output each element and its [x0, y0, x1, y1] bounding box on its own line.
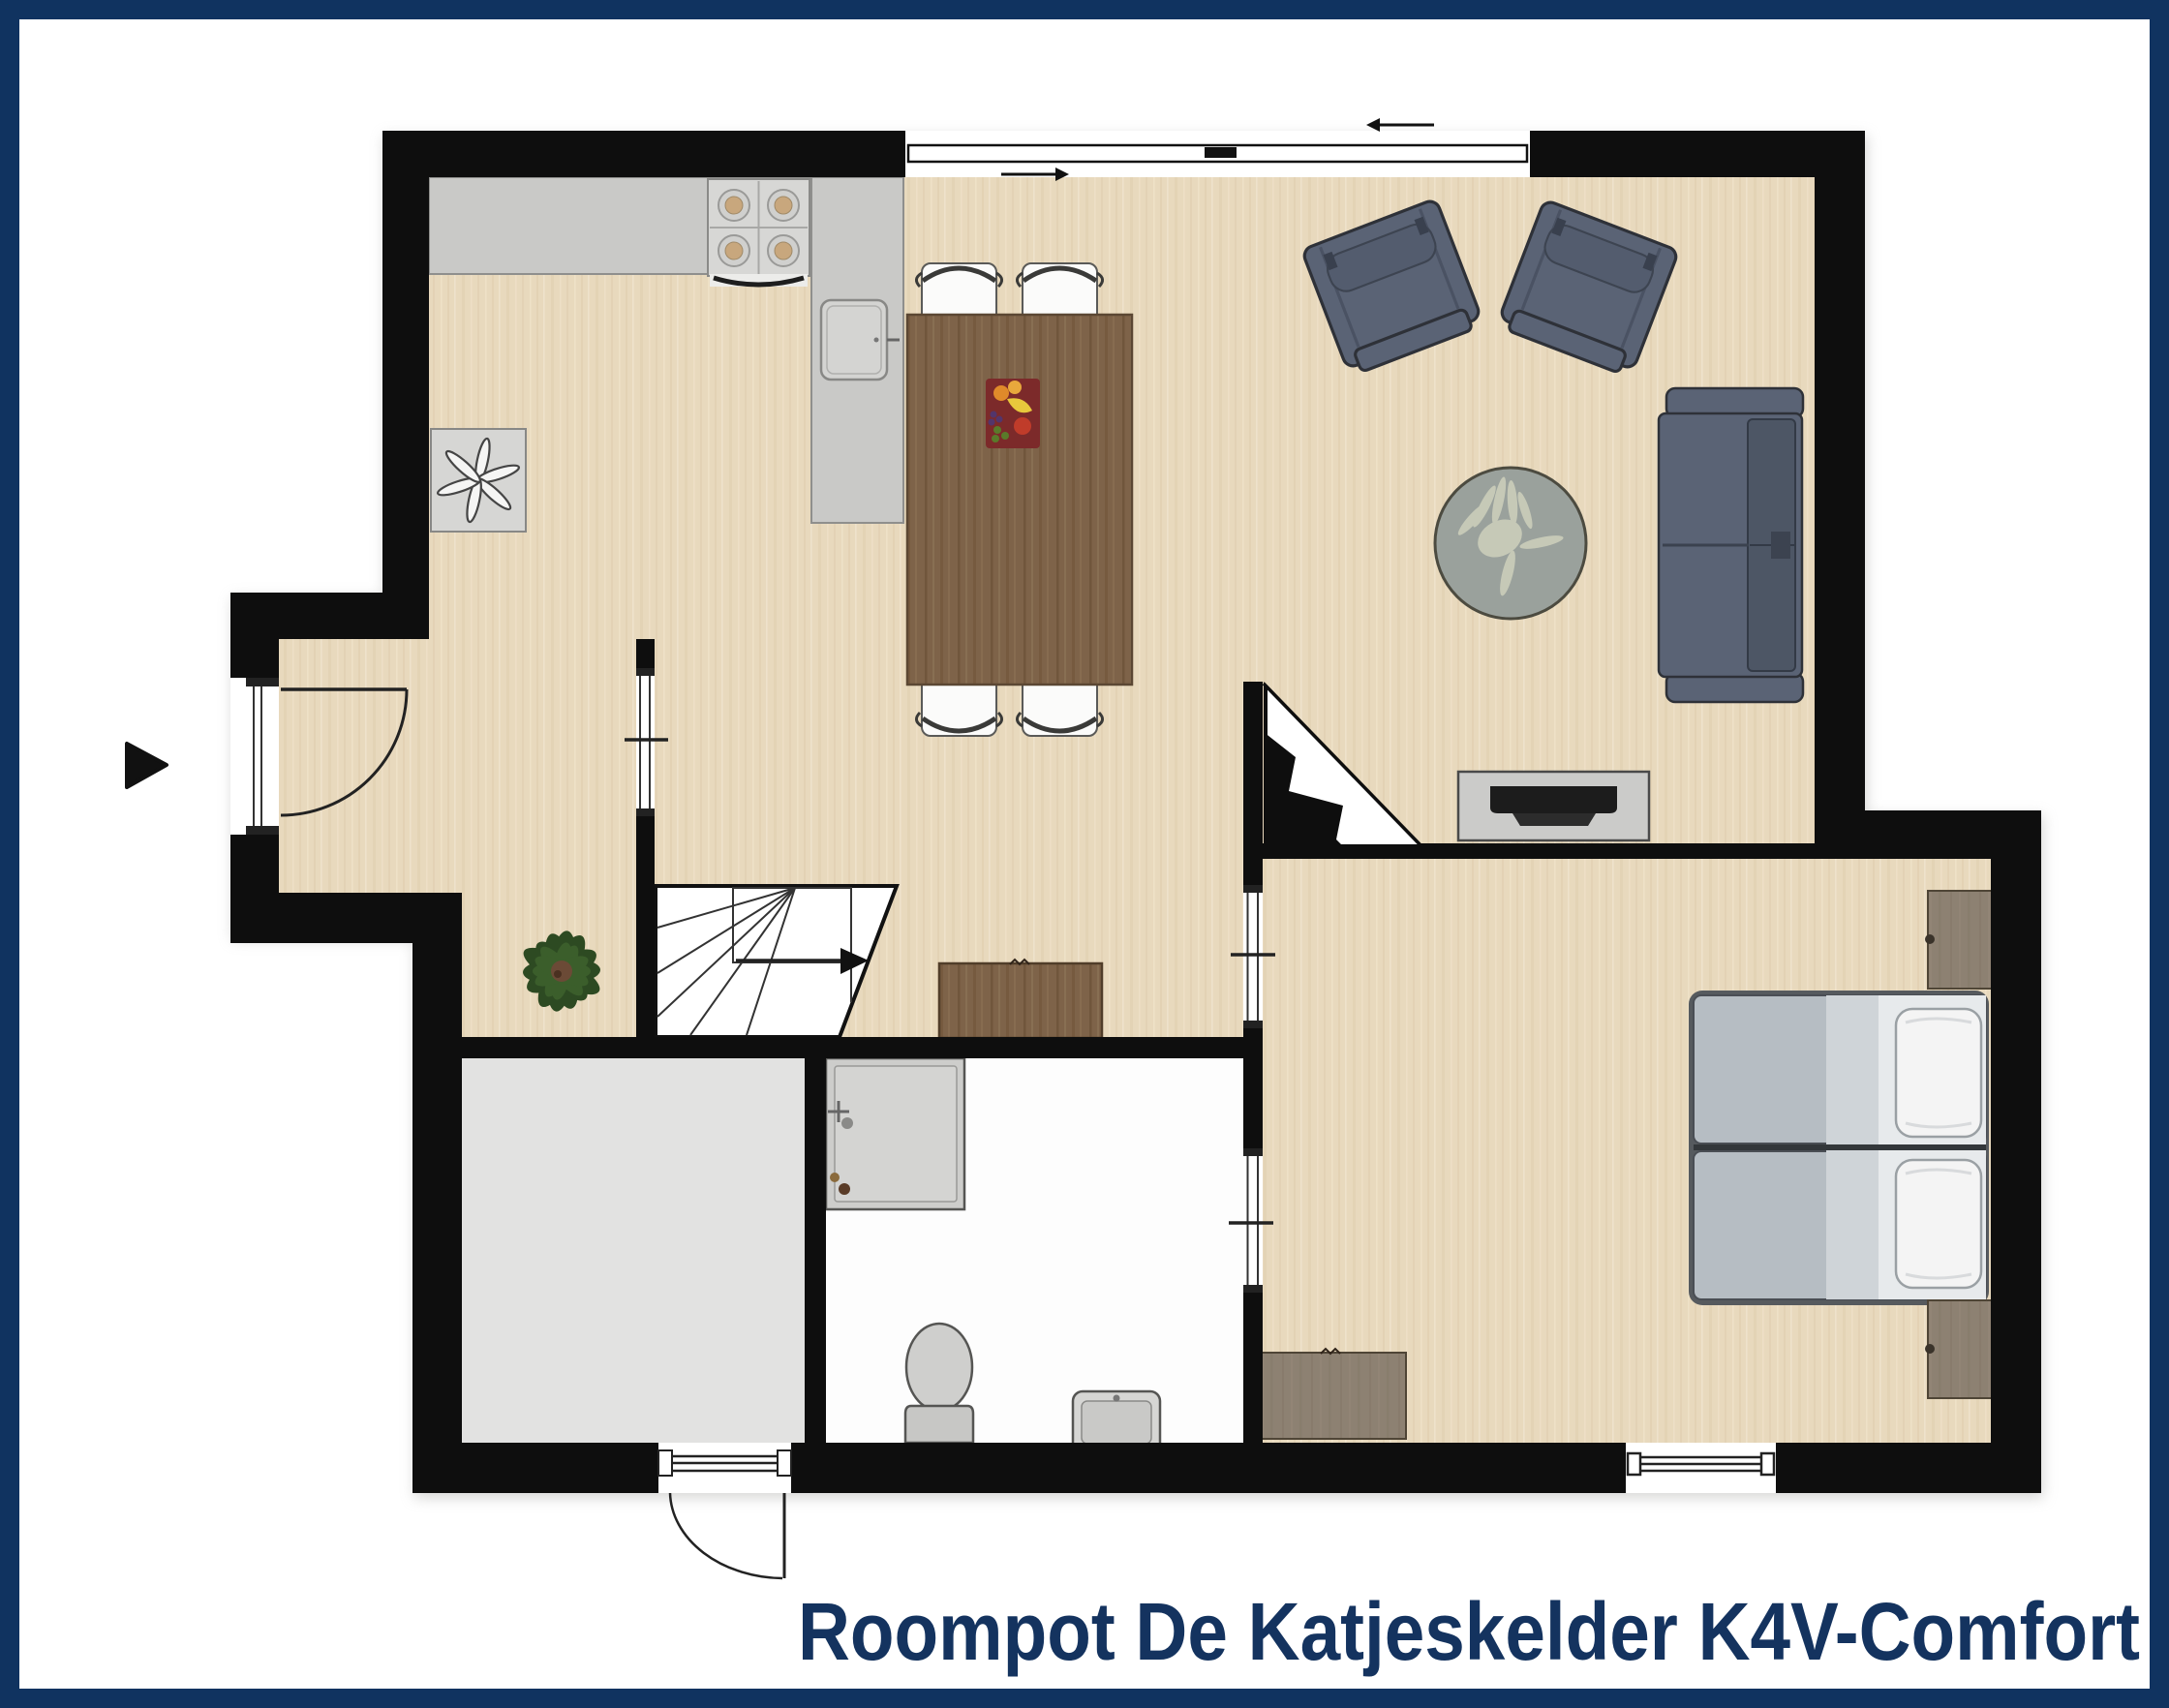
svg-text:Roompot De Katjeskelder K4V-Co: Roompot De Katjeskelder K4V-Comfort	[798, 1586, 2140, 1677]
